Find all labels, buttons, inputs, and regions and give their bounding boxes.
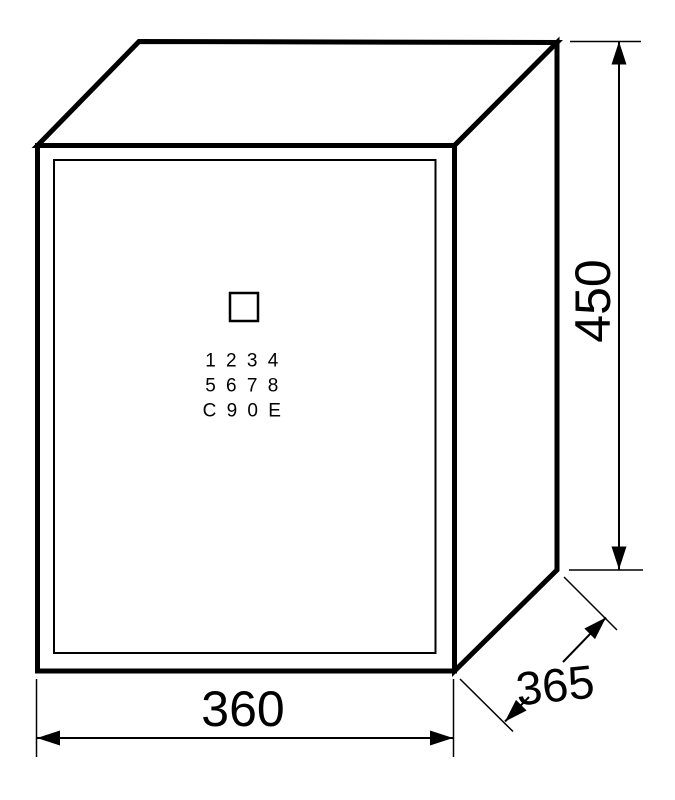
width-arrowhead-left-icon (37, 731, 60, 746)
safe-side-face (455, 43, 558, 672)
width-arrowhead-right-icon (430, 731, 453, 746)
width-dimension-label: 360 (201, 680, 284, 738)
safe-technical-drawing: 1 2 3 4 5 6 7 8 C 9 0 E 360 450 365 (0, 0, 675, 800)
depth-dimension-label: 365 (513, 654, 597, 717)
height-arrowhead-bottom-icon (612, 547, 627, 570)
keypad: 1 2 3 4 5 6 7 8 C 9 0 E (203, 349, 284, 424)
keyhole-square (230, 293, 258, 321)
depth-extension-line-front (460, 679, 513, 732)
keypad-row-1: 1 2 3 4 (203, 349, 284, 374)
height-arrowhead-top-icon (612, 42, 627, 65)
height-dimension-label: 450 (564, 259, 622, 342)
keypad-row-3: C 9 0 E (203, 399, 284, 424)
keypad-row-2: 5 6 7 8 (203, 374, 284, 399)
depth-extension-line-back (564, 577, 617, 630)
